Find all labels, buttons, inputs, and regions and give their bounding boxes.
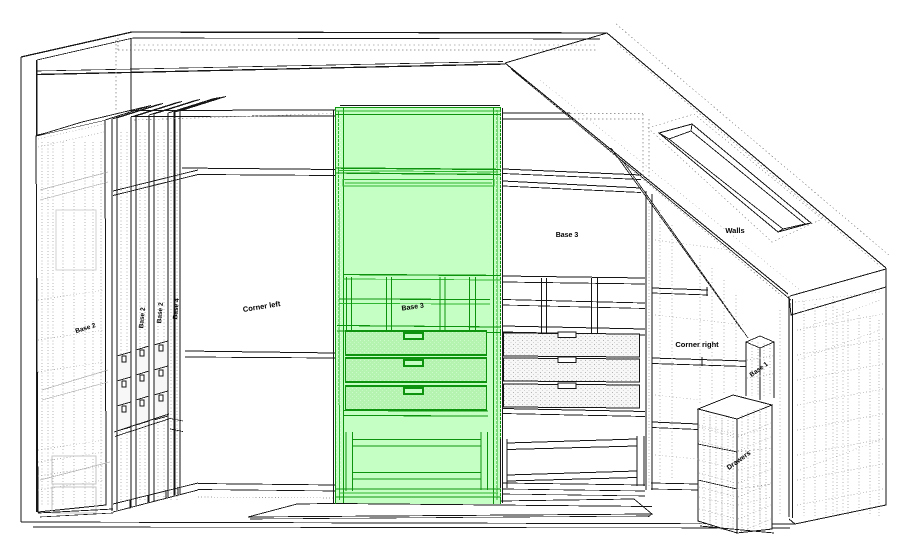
svg-text:Base 3: Base 3 xyxy=(556,232,579,239)
svg-text:Corner right: Corner right xyxy=(675,340,719,349)
svg-text:Walls: Walls xyxy=(725,226,744,235)
